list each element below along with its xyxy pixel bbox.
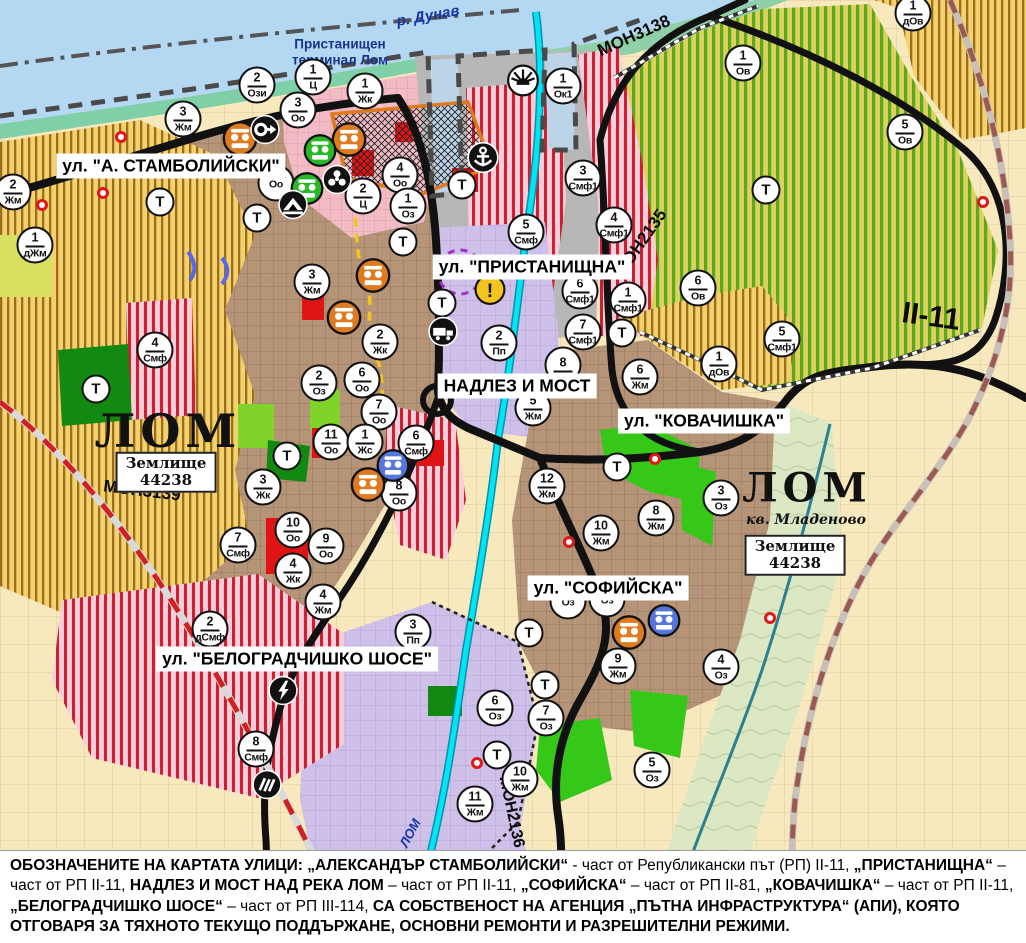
anchor-icon <box>467 141 500 179</box>
zone-marker: 1Ц <box>295 59 332 96</box>
zone-marker: 2Пп <box>481 325 518 362</box>
svg-text:!: ! <box>487 281 493 302</box>
trefoil-icon <box>322 164 353 200</box>
zone-marker: 1дОв <box>701 346 738 383</box>
poi-red-dot <box>97 187 109 199</box>
truck-icon <box>428 316 459 352</box>
land-register-box: Землище 44238 <box>116 452 217 493</box>
zone-marker: 2дСмф <box>192 611 229 648</box>
zone-marker: 1Жк <box>347 73 384 110</box>
legend-segment: – част от РП III-114, <box>223 898 373 915</box>
poi-red-dot <box>471 757 483 769</box>
sun-icon <box>507 64 540 102</box>
terminal-marker: Т <box>146 188 175 217</box>
zone-marker: 2Ози <box>239 67 276 104</box>
zone-marker: 8Смф <box>238 731 275 768</box>
settlement-label: ЛОМ <box>742 465 872 512</box>
zone-marker: 1дЖм <box>17 227 54 264</box>
monument-icon <box>326 300 362 341</box>
terminal-marker: Т <box>389 228 418 257</box>
zone-marker: 10Оо <box>275 512 312 549</box>
zone-marker: 7Оз <box>528 700 565 737</box>
zone-marker: 1Ов <box>725 45 762 82</box>
zone-marker: 5Смф <box>508 214 545 251</box>
legend-segment: „СОФИЙСКА“ <box>521 877 627 894</box>
circle-arrow-icon <box>250 114 281 150</box>
terminal-marker: Т <box>428 289 457 318</box>
quarter-label: кв. Младеново <box>746 512 866 528</box>
poi-red-dot <box>649 453 661 465</box>
monument-icon <box>611 615 647 656</box>
zone-marker: 7Смф <box>220 527 257 564</box>
zone-marker: 5Ов <box>887 114 924 151</box>
terminal-marker: Т <box>531 671 560 700</box>
land-register-box: Землище 44238 <box>745 535 846 576</box>
legend-segment: ОБОЗНАЧЕНИТЕ НА КАРТАТА УЛИЦИ: „АЛЕКСАНД… <box>10 857 568 874</box>
zone-marker: 10Жм <box>502 761 539 798</box>
zone-marker: 3Жк <box>245 469 282 506</box>
poi-red-dot <box>115 131 127 143</box>
street-label: ул. "ПРИСТАНИЩНА" <box>433 255 632 280</box>
zone-marker: 11Жм <box>457 786 494 823</box>
zone-marker: 6Жм <box>622 359 659 396</box>
terminal-marker: Т <box>603 453 632 482</box>
zone-marker: 6Оз <box>477 690 514 727</box>
zone-marker: 3Пп <box>395 614 432 651</box>
zone-marker: 7Смф1 <box>565 314 602 351</box>
legend-segment: „БЕЛОГРАДЧИШКО ШОСЕ“ <box>10 898 223 915</box>
zone-marker: 5Оз <box>634 752 671 789</box>
legend-segment: – част от РП II-81, <box>627 877 765 894</box>
zone-marker: 4Жк <box>275 553 312 590</box>
street-label: НАДЛЕЗ И МОСТ <box>438 374 597 399</box>
legend-segment: „КОВАЧИШКА“ <box>765 877 881 894</box>
terminal-marker: Т <box>752 176 781 205</box>
poi-red-dot <box>764 612 776 624</box>
legend-segment: „ПРИСТАНИЩНА“ <box>854 857 993 874</box>
street-label: ул. "А. СТАМБОЛИЙСКИ" <box>56 154 285 179</box>
zone-marker: 1Оз <box>390 188 427 225</box>
zone-marker: 2Жк <box>362 324 399 361</box>
lightning-icon <box>268 675 299 711</box>
zone-marker: 6Ов <box>680 270 717 307</box>
zone-marker: 12Жм <box>529 468 566 505</box>
zone-marker: 4Смф <box>137 332 174 369</box>
street-label: ул. "БЕЛОГРАДЧИШКО ШОСЕ" <box>156 647 438 672</box>
poi-red-dot <box>563 536 575 548</box>
cave-icon <box>278 189 309 225</box>
street-label: ул. "СОФИЙСКА" <box>528 576 689 601</box>
terminal-marker: Т <box>608 319 637 348</box>
poi-red-dot <box>977 196 989 208</box>
legend-text: ОБОЗНАЧЕНИТЕ НА КАРТАТА УЛИЦИ: „АЛЕКСАНД… <box>0 851 1026 943</box>
zone-marker: 8Жм <box>638 500 675 537</box>
zone-marker: 4Жм <box>305 584 342 621</box>
terminal-marker: Т <box>515 619 544 648</box>
legend-segment: - част от Републикански път (РП) II-11, <box>568 857 854 874</box>
zone-marker: 4Смф1 <box>596 207 633 244</box>
zoning-map: 2Ози1Ц3Оо1Жк3Жм2Жм1дЖм3Жм4ОоОо2Ц1Оз1Ок15… <box>0 0 1026 943</box>
legend-segment: НАДЛЕЗ И МОСТ НАД РЕКА ЛОМ <box>130 877 384 894</box>
terminal-marker: Т <box>273 442 302 471</box>
monument-icon <box>355 258 391 299</box>
zone-marker: 5Смф1 <box>764 321 801 358</box>
zone-marker: 11Оо <box>313 424 350 461</box>
zone-marker: 4Оз <box>703 649 740 686</box>
poi-red-dot <box>36 199 48 211</box>
street-label: ул. "КОВАЧИШКА" <box>618 409 790 434</box>
zone-marker: 3Оз <box>703 480 740 517</box>
zone-marker: 3Жм <box>294 264 331 301</box>
zone-marker: 3Смф1 <box>565 160 602 197</box>
zone-marker: 1Ок1 <box>545 68 582 105</box>
zone-marker: 2Оз <box>301 365 338 402</box>
zone-marker: 3Оо <box>280 92 317 129</box>
rail-station-icon <box>252 769 283 805</box>
zone-marker: 3Жм <box>165 101 202 138</box>
terminal-marker: Т <box>243 204 272 233</box>
monument-icon <box>647 604 681 643</box>
legend-segment: – част от РП II-11, <box>881 877 1014 894</box>
settlement-label: ЛОМ <box>95 404 242 458</box>
legend-segment: – част от РП II-11, <box>384 877 521 894</box>
zone-marker: 9Оо <box>308 528 345 565</box>
terminal-marker: Т <box>82 375 111 404</box>
terminal-marker: Т <box>483 741 512 770</box>
zone-marker: 10Жм <box>583 515 620 552</box>
monument-icon <box>376 449 410 488</box>
zone-marker: 1Смф1 <box>610 282 647 319</box>
